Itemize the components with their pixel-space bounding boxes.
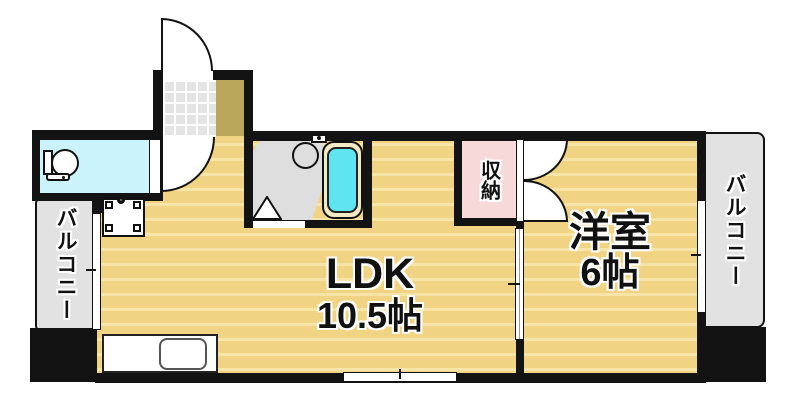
bath-door-mark-icon bbox=[252, 196, 282, 220]
wall-right-bottom bbox=[697, 313, 706, 377]
entrance-hall-floor bbox=[216, 80, 244, 136]
wall-toilet-top bbox=[32, 130, 163, 140]
bathtub-rim-icon bbox=[322, 141, 363, 219]
window-left bbox=[92, 213, 101, 330]
wall-corner-bottom-right bbox=[698, 327, 766, 382]
balcony-right: バルコニー bbox=[703, 132, 765, 328]
washing-pan-corner-icon bbox=[133, 201, 141, 209]
ldk-label: LDK 10.5帖 bbox=[265, 252, 475, 335]
washing-pan-corner-icon bbox=[133, 224, 141, 232]
wall-bath-right bbox=[363, 141, 372, 228]
balcony-right-label: バルコニー bbox=[719, 173, 749, 288]
wall-corner-bottom-left bbox=[30, 328, 97, 382]
washing-pan-corner-icon bbox=[105, 201, 113, 209]
kitchen-sink-icon bbox=[159, 338, 207, 370]
wall-storage-left bbox=[454, 141, 462, 226]
toilet-base-icon bbox=[46, 173, 70, 181]
storage-room: 収納 bbox=[462, 141, 516, 218]
washbasin-icon bbox=[292, 142, 319, 169]
balcony-left-label: バルコニー bbox=[50, 207, 80, 322]
toilet-door bbox=[149, 139, 161, 194]
balcony-left: バルコニー bbox=[35, 198, 95, 331]
western-room-name: 洋室 bbox=[535, 211, 685, 254]
western-room-label: 洋室 6帖 bbox=[535, 211, 685, 294]
bathtub-icon bbox=[327, 147, 358, 213]
bathroom-doorway-gap bbox=[253, 221, 305, 228]
wall-storage-bottom bbox=[454, 218, 524, 226]
window-bottom-tick bbox=[399, 369, 401, 379]
entrance-tile-floor bbox=[163, 80, 216, 137]
western-room-size: 6帖 bbox=[535, 254, 685, 294]
window-right bbox=[697, 200, 706, 313]
entrance-door-swing-icon bbox=[161, 18, 213, 71]
wall-right-top bbox=[697, 131, 706, 201]
closet-door-plane bbox=[516, 139, 524, 222]
window-right-tick bbox=[691, 254, 701, 256]
bath-faucet-dot-icon bbox=[317, 136, 321, 140]
entrance-doorway-gap bbox=[163, 70, 213, 81]
window-left-tick bbox=[86, 269, 96, 271]
ldk-name: LDK bbox=[265, 252, 475, 297]
wall-toilet-left bbox=[32, 130, 40, 201]
toilet-flush-dot-icon bbox=[62, 176, 65, 179]
washing-pan-faucet-icon bbox=[117, 196, 125, 204]
partition-door-tick bbox=[508, 283, 520, 285]
floorplan: バルコニー バルコニー bbox=[0, 0, 800, 401]
ldk-size: 10.5帖 bbox=[265, 297, 475, 335]
washing-pan-corner-icon bbox=[105, 224, 113, 232]
wall-entrance-left bbox=[153, 70, 163, 141]
storage-label: 収納 bbox=[475, 160, 504, 200]
